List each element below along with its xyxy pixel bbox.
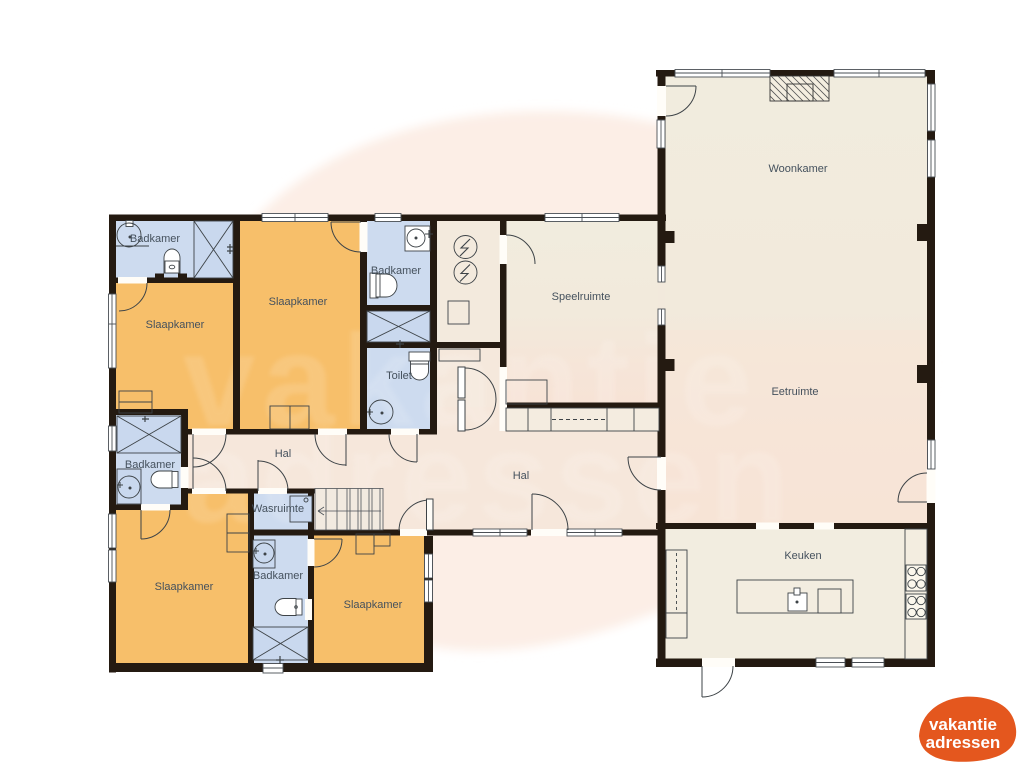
svg-text:Woonkamer: Woonkamer xyxy=(768,163,827,175)
svg-text:Badkamer: Badkamer xyxy=(125,459,175,471)
svg-text:Slaapkamer: Slaapkamer xyxy=(146,319,205,331)
svg-text:Badkamer: Badkamer xyxy=(253,570,303,582)
svg-text:vakantie: vakantie xyxy=(929,715,997,734)
svg-text:Slaapkamer: Slaapkamer xyxy=(269,296,328,308)
svg-text:Slaapkamer: Slaapkamer xyxy=(155,581,214,593)
svg-text:Wasruimte: Wasruimte xyxy=(252,503,304,515)
svg-text:Badkamer: Badkamer xyxy=(130,233,180,245)
svg-text:Keuken: Keuken xyxy=(784,550,821,562)
svg-text:Hal: Hal xyxy=(513,470,530,482)
svg-text:Badkamer: Badkamer xyxy=(371,265,421,277)
svg-text:Speelruimte: Speelruimte xyxy=(552,291,611,303)
svg-text:adressen: adressen xyxy=(926,733,1001,752)
svg-text:Eetruimte: Eetruimte xyxy=(771,386,818,398)
svg-text:Slaapkamer: Slaapkamer xyxy=(344,599,403,611)
svg-text:Hal: Hal xyxy=(275,448,292,460)
svg-text:Toilet: Toilet xyxy=(386,370,412,382)
